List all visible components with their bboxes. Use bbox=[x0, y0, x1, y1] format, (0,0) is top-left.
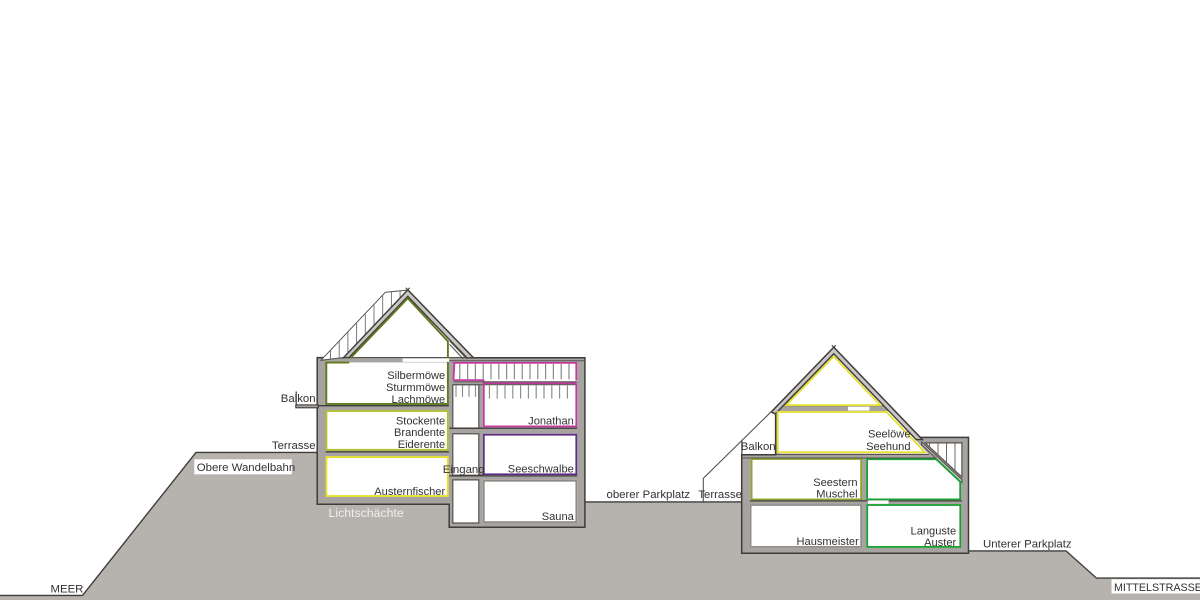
svg-text:Seehund: Seehund bbox=[866, 441, 910, 453]
svg-text:Sauna: Sauna bbox=[542, 511, 575, 523]
svg-text:Hausmeister: Hausmeister bbox=[797, 536, 860, 548]
svg-text:Silbermöwe: Silbermöwe bbox=[387, 370, 445, 382]
svg-text:Muschel: Muschel bbox=[816, 488, 857, 500]
svg-text:Jonathan: Jonathan bbox=[528, 415, 574, 427]
svg-text:Sturmmöwe: Sturmmöwe bbox=[386, 382, 445, 394]
svg-text:Eingang: Eingang bbox=[443, 464, 485, 476]
svg-text:Obere Wandelbahn: Obere Wandelbahn bbox=[197, 462, 295, 474]
svg-text:Brandente: Brandente bbox=[394, 427, 445, 439]
svg-text:Auster: Auster bbox=[924, 537, 956, 549]
svg-text:Terrasse: Terrasse bbox=[698, 489, 742, 501]
svg-text:Balkon: Balkon bbox=[281, 393, 316, 405]
svg-text:Seeschwalbe: Seeschwalbe bbox=[508, 464, 574, 476]
svg-text:Lichtschächte: Lichtschächte bbox=[329, 506, 404, 520]
svg-text:oberer Parkplatz: oberer Parkplatz bbox=[607, 489, 691, 501]
svg-text:Stockente: Stockente bbox=[396, 416, 445, 428]
svg-text:Seestern: Seestern bbox=[813, 477, 857, 489]
svg-text:MEER: MEER bbox=[51, 583, 84, 595]
svg-text:Unterer Parkplatz: Unterer Parkplatz bbox=[983, 539, 1072, 551]
svg-text:Eiderente: Eiderente bbox=[398, 439, 446, 451]
svg-text:Austernfischer: Austernfischer bbox=[374, 486, 445, 498]
svg-text:MITTELSTRASSE: MITTELSTRASSE bbox=[1114, 582, 1200, 594]
svg-text:Lachmöwe: Lachmöwe bbox=[392, 394, 446, 406]
svg-text:Terrasse: Terrasse bbox=[272, 440, 316, 452]
svg-text:Seelöwe: Seelöwe bbox=[868, 429, 911, 441]
svg-text:Languste: Languste bbox=[911, 526, 957, 538]
svg-text:Balkon: Balkon bbox=[741, 441, 776, 453]
